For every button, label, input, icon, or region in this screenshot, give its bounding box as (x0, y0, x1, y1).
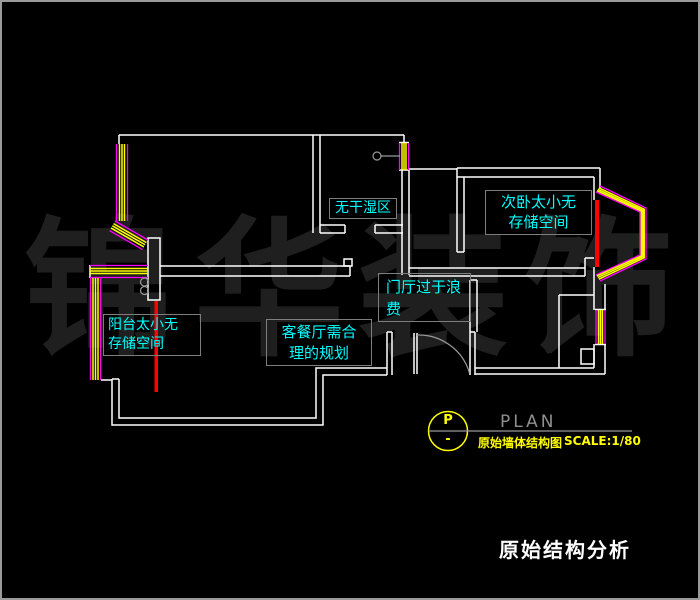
window-top-left-vertical (117, 144, 128, 221)
annotation-living: 客餐厅需合 理的规划 (266, 319, 372, 366)
scale-label: SCALE:1/80 (564, 434, 641, 448)
demolition-mark-right (595, 200, 599, 267)
annotation-line: 费 (386, 298, 470, 320)
light-fixture-icon (373, 152, 381, 160)
bay-window-top-right (596, 186, 646, 281)
floor-plan (2, 2, 700, 600)
annotation-balcony: 阳台太小无 存储空间 (103, 314, 201, 356)
cad-drawing-canvas: 锦 华 装 饰 (0, 0, 700, 600)
window-balcony-vertical (91, 278, 101, 380)
plan-marker-letter: P (441, 413, 455, 428)
annotation-line: 次卧太小无 (486, 192, 591, 212)
annotation-hall: 门厅过于浪 费 (378, 273, 471, 322)
drawing-name-label: 原始墙体结构图 (478, 434, 562, 451)
annotation-line: 存储空间 (486, 212, 591, 232)
entry-door-swing-arc (417, 335, 470, 373)
annotation-line: 门厅过于浪 (386, 276, 470, 298)
plan-marker-dash: - (441, 432, 455, 447)
plan-label: PLAN (500, 412, 556, 432)
window-bathroom (400, 143, 409, 170)
walls (90, 135, 606, 425)
annotation-line: 客餐厅需合 (267, 322, 371, 343)
window-bottom-right (596, 310, 605, 344)
window-top-left-diagonal (110, 221, 148, 250)
sheet-title: 原始结构分析 (499, 534, 631, 563)
annotation-line: 理的规划 (267, 343, 371, 364)
annotation-line: 无干湿区 (330, 199, 396, 218)
annotation-bathroom: 无干湿区 (329, 198, 397, 219)
annotation-line: 阳台太小无 (108, 316, 200, 335)
window-left-horizontal (90, 266, 148, 278)
annotation-bedroom2: 次卧太小无 存储空间 (485, 190, 592, 235)
entry-door-leaf (414, 333, 417, 374)
annotation-line: 存储空间 (108, 335, 200, 354)
